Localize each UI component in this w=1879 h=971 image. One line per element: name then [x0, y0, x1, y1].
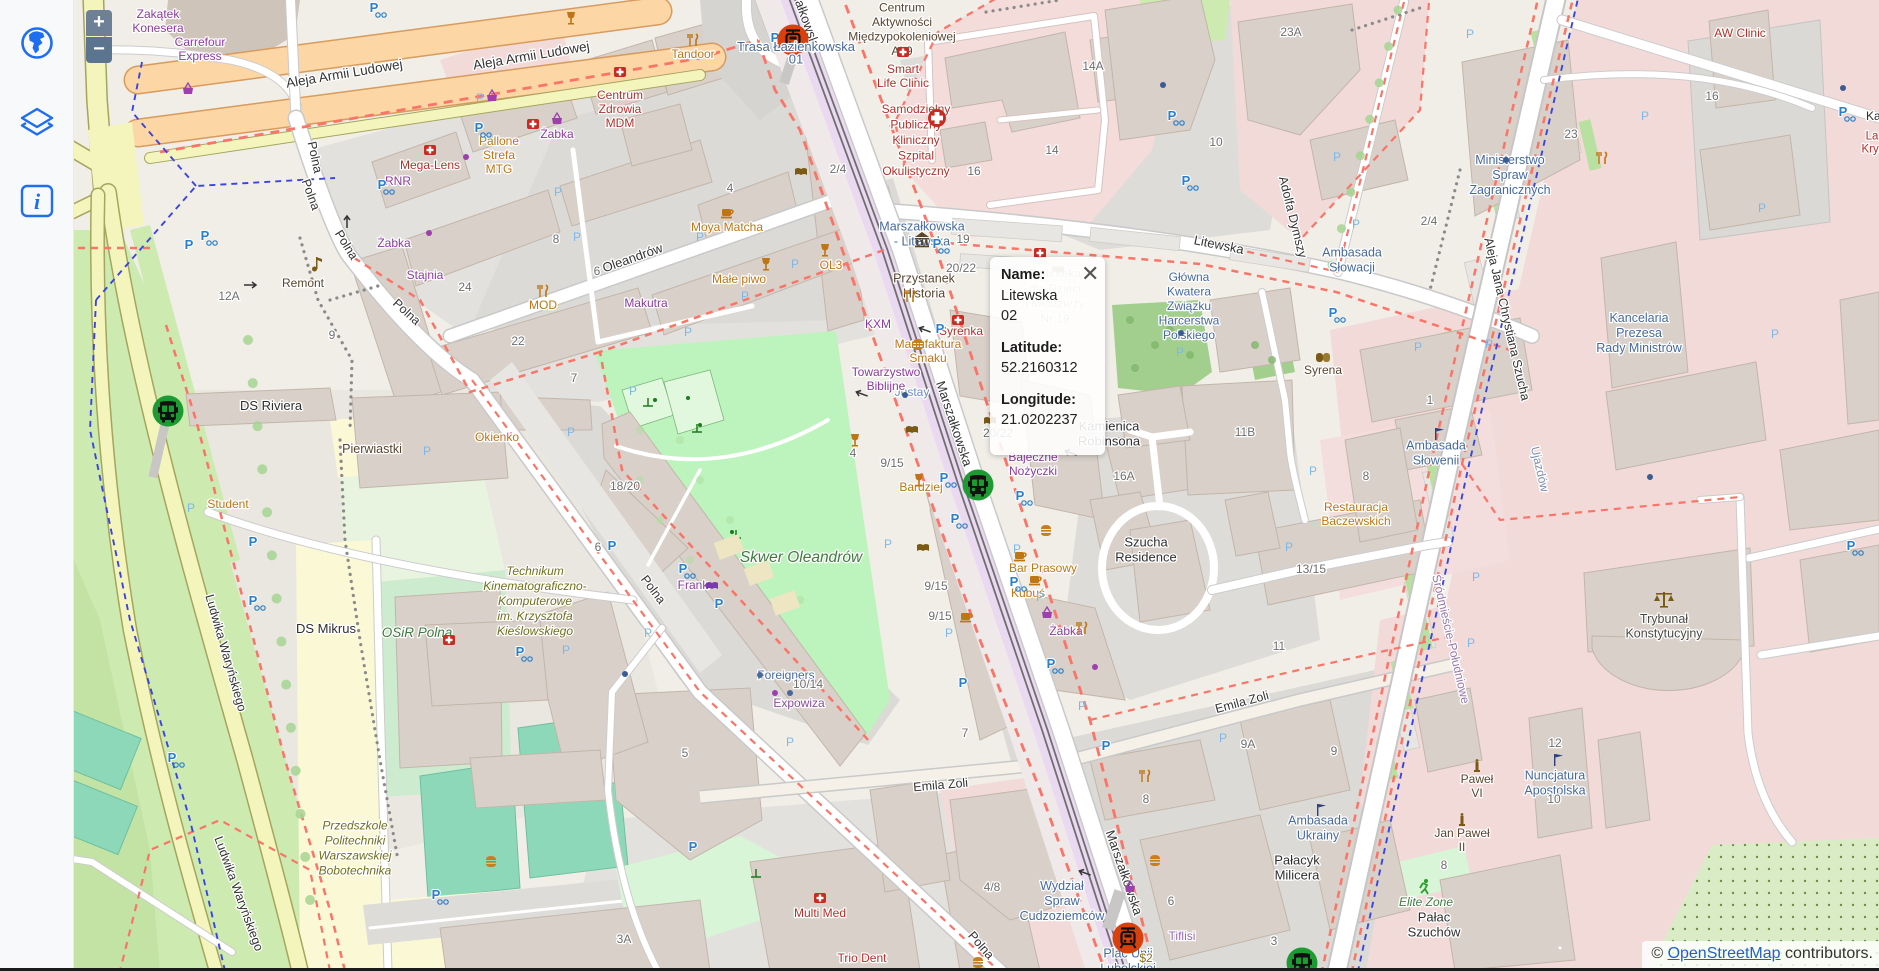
svg-text:i: i [33, 189, 40, 214]
svg-text:16A: 16A [1113, 469, 1134, 483]
svg-text:6: 6 [594, 264, 601, 278]
svg-text:P: P [1036, 590, 1044, 604]
svg-text:Stajnia: Stajnia [407, 268, 444, 282]
svg-text:7: 7 [571, 371, 578, 385]
svg-text:Ambasada: Ambasada [1406, 439, 1466, 453]
svg-text:Restauracja: Restauracja [1324, 500, 1388, 514]
svg-text:Zdrowia: Zdrowia [599, 102, 642, 116]
svg-text:Biblijne: Biblijne [867, 379, 906, 393]
svg-text:P: P [945, 626, 953, 640]
svg-text:DS Riviera: DS Riviera [240, 398, 303, 413]
svg-text:23: 23 [1564, 127, 1578, 141]
svg-text:KXM: KXM [865, 317, 891, 331]
svg-text:Ambasada: Ambasada [1322, 246, 1382, 260]
svg-text:Zagranicznych: Zagranicznych [1469, 183, 1550, 197]
svg-text:Słowacji: Słowacji [1329, 261, 1375, 275]
svg-text:P: P [1641, 109, 1649, 123]
svg-text:11B: 11B [1235, 425, 1255, 439]
svg-text:Smart: Smart [887, 62, 920, 76]
svg-text:P: P [715, 596, 724, 611]
svg-text:14A: 14A [1082, 59, 1103, 73]
svg-text:Żabka: Żabka [1049, 624, 1083, 638]
svg-text:P: P [562, 643, 570, 657]
svg-text:VI: VI [1471, 786, 1482, 800]
svg-text:Technikum: Technikum [506, 564, 564, 578]
svg-text:5: 5 [682, 746, 689, 760]
svg-text:2/4: 2/4 [1421, 214, 1438, 228]
svg-text:P: P [185, 237, 194, 252]
svg-text:4/8: 4/8 [984, 880, 1001, 894]
svg-text:La: La [1866, 131, 1879, 143]
svg-text:Ministerstwo: Ministerstwo [1475, 153, 1545, 167]
svg-text:P: P [476, 91, 484, 105]
svg-text:P: P [1485, 337, 1493, 351]
svg-text:9/15: 9/15 [928, 609, 952, 623]
svg-text:Szpital: Szpital [898, 149, 934, 163]
svg-text:P: P [786, 735, 794, 749]
svg-text:Rady Ministrów: Rady Ministrów [1596, 341, 1682, 355]
svg-text:Centrum: Centrum [597, 88, 643, 102]
svg-text:Milicera: Milicera [1275, 868, 1321, 883]
svg-text:P: P [884, 537, 892, 551]
svg-text:8: 8 [1363, 469, 1370, 483]
svg-text:Bobotechnika: Bobotechnika [319, 864, 392, 878]
svg-text:P: P [554, 185, 562, 199]
svg-text:Kryr: Kryr [1861, 144, 1879, 156]
svg-text:Główna: Główna [1169, 270, 1210, 284]
svg-text:Politechniki: Politechniki [325, 834, 386, 848]
svg-text:AW Clinic: AW Clinic [1714, 26, 1766, 40]
svg-text:P: P [567, 425, 575, 439]
svg-text:8: 8 [1143, 792, 1150, 806]
svg-text:Remont: Remont [282, 276, 325, 290]
svg-text:Carrefour: Carrefour [175, 35, 226, 49]
svg-text:Residence: Residence [1115, 550, 1176, 565]
svg-text:9/15: 9/15 [880, 456, 904, 470]
svg-text:14: 14 [1045, 143, 1059, 157]
svg-text:P: P [696, 230, 704, 244]
svg-text:Mega-Lens: Mega-Lens [400, 158, 460, 172]
svg-text:Manufaktura: Manufaktura [895, 337, 962, 351]
svg-text:OL3: OL3 [820, 258, 843, 272]
svg-text:Żabka: Żabka [377, 236, 411, 250]
svg-text:Expowiza: Expowiza [773, 696, 825, 710]
svg-text:Wydział: Wydział [1040, 879, 1084, 893]
svg-text:P: P [608, 538, 617, 553]
svg-text:10/14: 10/14 [793, 677, 823, 691]
svg-text:23A: 23A [1280, 25, 1301, 39]
svg-text:P: P [1771, 327, 1779, 341]
svg-text:Smaku: Smaku [909, 351, 946, 365]
svg-text:18/20: 18/20 [610, 479, 640, 493]
svg-text:im. Krzysztofa: im. Krzysztofa [497, 609, 573, 623]
svg-text:Trio Dent: Trio Dent [838, 951, 888, 965]
svg-text:9: 9 [329, 328, 336, 342]
svg-text:Okulistyczny: Okulistyczny [882, 164, 949, 178]
svg-text:3A: 3A [617, 932, 632, 946]
svg-text:P: P [1352, 217, 1360, 231]
svg-text:P: P [1414, 340, 1422, 354]
svg-text:22: 22 [511, 334, 525, 348]
svg-text:P: P [187, 501, 195, 515]
svg-text:24: 24 [458, 280, 472, 294]
svg-text:19: 19 [956, 232, 970, 246]
svg-text:Bar Prasowy: Bar Prasowy [1009, 561, 1077, 575]
svg-text:Skwer Oleandrów: Skwer Oleandrów [740, 549, 864, 566]
svg-text:Jan Paweł: Jan Paweł [1434, 826, 1490, 840]
svg-text:Aktywności: Aktywności [872, 15, 932, 29]
svg-text:P: P [684, 325, 692, 339]
svg-text:Okienko: Okienko [475, 430, 519, 444]
svg-text:2/4: 2/4 [830, 162, 847, 176]
svg-text:Szuchów: Szuchów [1408, 925, 1461, 940]
svg-text:Zakątek: Zakątek [137, 7, 181, 21]
svg-text:P: P [1078, 699, 1086, 713]
svg-text:Bardziej: Bardziej [899, 480, 942, 494]
svg-text:Ukrainy: Ukrainy [1297, 829, 1340, 843]
svg-text:4: 4 [850, 446, 857, 460]
svg-text:Kinematograficzno-: Kinematograficzno- [483, 579, 586, 593]
svg-text:P: P [644, 626, 652, 640]
svg-text:MOD: MOD [529, 298, 557, 312]
svg-text:II: II [1459, 840, 1466, 854]
svg-text:Komputerowe: Komputerowe [498, 594, 572, 608]
svg-text:Kwatera: Kwatera [1167, 285, 1211, 299]
svg-text:Spraw: Spraw [1492, 168, 1528, 182]
svg-text:P: P [249, 534, 258, 549]
svg-text:Kieślowskiego: Kieślowskiego [497, 624, 573, 638]
svg-text:Multi Med: Multi Med [794, 906, 846, 920]
svg-text:Nuncjatura: Nuncjatura [1525, 769, 1585, 783]
svg-text:7: 7 [962, 726, 969, 740]
svg-text:Trybunał: Trybunał [1640, 612, 1688, 626]
svg-text:Paweł: Paweł [1461, 772, 1494, 786]
svg-text:Związku: Związku [1167, 299, 1211, 313]
svg-text:P: P [1285, 540, 1293, 554]
svg-text:Prezesa: Prezesa [1616, 326, 1662, 340]
svg-text:RNR: RNR [385, 174, 411, 188]
svg-text:8: 8 [1441, 858, 1448, 872]
svg-text:16: 16 [1705, 89, 1719, 103]
svg-text:Pałac: Pałac [1418, 910, 1451, 925]
svg-text:P: P [1472, 570, 1480, 584]
svg-text:12: 12 [1548, 736, 1562, 750]
svg-text:Life Clinic: Life Clinic [877, 76, 929, 90]
svg-text:P: P [689, 839, 698, 854]
svg-text:Konesera: Konesera [132, 21, 184, 35]
svg-text:9/15: 9/15 [924, 579, 948, 593]
svg-text:12A: 12A [218, 289, 239, 303]
svg-text:P: P [1102, 738, 1111, 753]
svg-text:Małe piwo: Małe piwo [712, 272, 766, 286]
svg-text:Baczewskich: Baczewskich [1321, 514, 1390, 528]
svg-text:Kliniczny: Kliniczny [892, 133, 939, 147]
svg-text:Syrena: Syrena [1304, 363, 1342, 377]
svg-text:P: P [1333, 150, 1341, 164]
svg-text:10: 10 [1209, 135, 1223, 149]
svg-text:9: 9 [1331, 744, 1338, 758]
svg-text:8: 8 [553, 232, 560, 246]
svg-text:Tandoor: Tandoor [671, 47, 714, 61]
svg-text:Konstytucyjny: Konstytucyjny [1625, 626, 1703, 640]
svg-text:Pierwiastki: Pierwiastki [342, 442, 402, 456]
svg-text:Żabka: Żabka [540, 127, 574, 141]
svg-text:Nożyczki: Nożyczki [1009, 464, 1057, 478]
svg-text:4: 4 [727, 181, 734, 195]
svg-text:MDM: MDM [606, 116, 635, 130]
svg-text:P: P [741, 289, 749, 303]
svg-text:Kan: Kan [1866, 109, 1879, 123]
svg-text:Przedszkole: Przedszkole [322, 819, 388, 833]
svg-text:P: P [959, 675, 968, 690]
svg-text:6: 6 [595, 540, 602, 554]
svg-text:P: P [936, 321, 945, 336]
svg-text:Harcerstwa: Harcerstwa [1159, 314, 1220, 328]
svg-text:$2: $2 [1139, 951, 1153, 965]
svg-text:1: 1 [1427, 393, 1434, 407]
svg-text:Syrenka: Syrenka [939, 324, 983, 338]
svg-text:P: P [1309, 464, 1317, 478]
svg-text:01: 01 [789, 51, 803, 66]
svg-text:Student: Student [207, 497, 249, 511]
svg-text:3: 3 [1271, 934, 1278, 948]
svg-text:Express: Express [178, 49, 221, 63]
svg-text:P: P [1758, 201, 1766, 215]
svg-text:Spraw: Spraw [1044, 894, 1080, 908]
svg-text:P: P [423, 444, 431, 458]
svg-text:10: 10 [1547, 792, 1561, 806]
svg-text:Elite Zone: Elite Zone [1399, 895, 1453, 909]
svg-text:Tiflisi: Tiflisi [1169, 929, 1196, 943]
svg-text:Kancelaria: Kancelaria [1609, 311, 1668, 325]
svg-text:Towarzystwo: Towarzystwo [852, 365, 921, 379]
svg-text:Międzypokoleniowej: Międzypokoleniowej [848, 29, 955, 43]
svg-text:9A: 9A [1241, 737, 1256, 751]
svg-text:Cudzoziemców: Cudzoziemców [1020, 909, 1106, 923]
svg-text:Warszawskiej: Warszawskiej [318, 849, 391, 863]
svg-text:Marszałkowska: Marszałkowska [879, 220, 964, 234]
svg-text:Makutra: Makutra [624, 296, 668, 310]
svg-text:11: 11 [1273, 639, 1286, 653]
svg-text:P: P [791, 257, 799, 271]
svg-text:P: P [1176, 345, 1184, 359]
svg-text:P: P [629, 384, 637, 398]
svg-text:Pałacyk: Pałacyk [1274, 853, 1320, 868]
svg-text:P: P [1467, 636, 1475, 650]
svg-text:Frank: Frank [678, 578, 710, 592]
svg-text:P: P [573, 230, 581, 244]
svg-text:20/22: 20/22 [946, 261, 976, 275]
svg-text:P: P [1219, 731, 1227, 745]
svg-text:Słowenii: Słowenii [1413, 454, 1460, 468]
svg-text:P: P [1466, 27, 1474, 41]
svg-text:6: 6 [1168, 894, 1175, 908]
svg-text:Polskiego: Polskiego [1163, 328, 1215, 342]
svg-text:13/15: 13/15 [1296, 562, 1326, 576]
svg-text:DS Mikrus: DS Mikrus [296, 621, 356, 636]
svg-text:Szucha: Szucha [1124, 535, 1168, 550]
svg-text:OSiR Polna: OSiR Polna [382, 625, 453, 640]
svg-text:Strefa: Strefa [483, 148, 515, 162]
svg-text:16: 16 [967, 164, 981, 178]
svg-text:MTG: MTG [486, 162, 513, 176]
svg-text:Centrum: Centrum [879, 0, 925, 14]
